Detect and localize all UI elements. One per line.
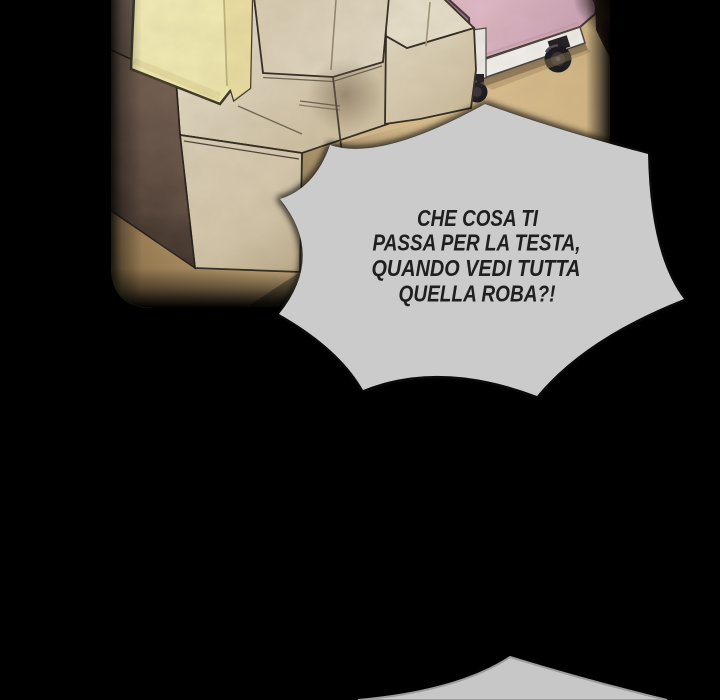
svg-text:QUELLA ROBA?!: QUELLA ROBA?! [399, 281, 556, 307]
svg-text:CHE COSA TI: CHE COSA TI [417, 205, 538, 231]
svg-text:PASSA PER LA TESTA,: PASSA PER LA TESTA, [373, 230, 581, 256]
svg-text:QUANDO VEDI TUTTA: QUANDO VEDI TUTTA [372, 255, 581, 281]
